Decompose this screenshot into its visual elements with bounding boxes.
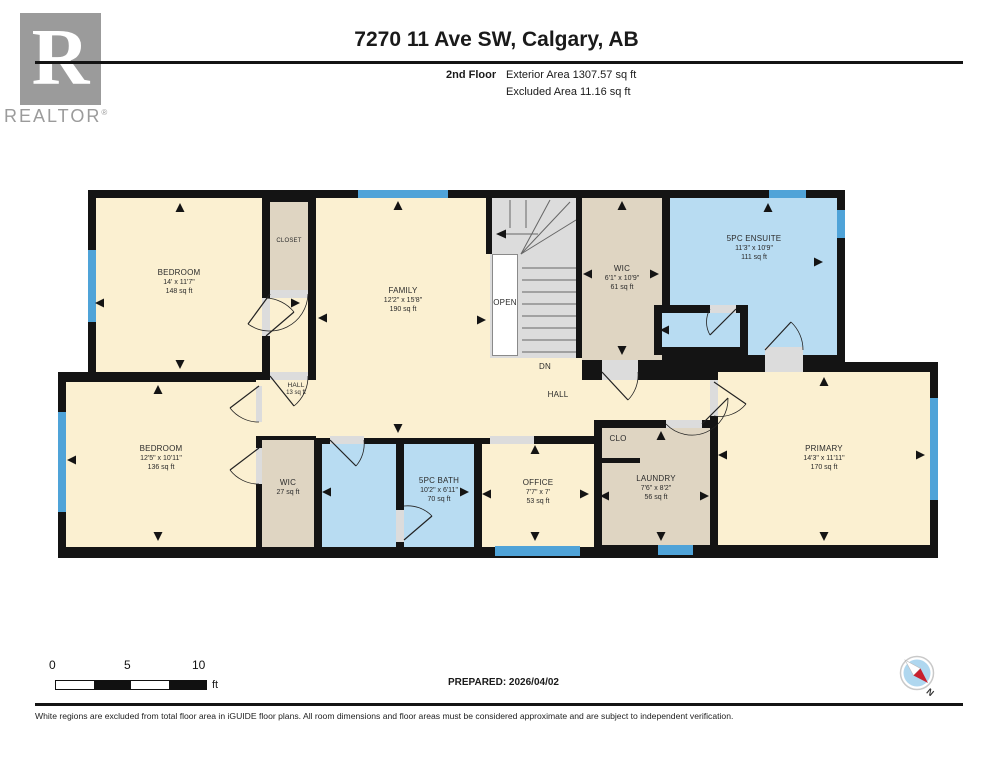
scale-tick-10: 10 [192,658,205,672]
dimension-arrow [618,201,627,210]
floorplan-page: R REALTOR® 7270 11 Ave SW, Calgary, AB 2… [0,0,993,768]
scale-bar-segment [94,681,132,689]
scale-tick-0: 0 [49,658,56,672]
disclaimer-text: White regions are excluded from total fl… [35,711,960,721]
dimension-arrow [67,456,76,465]
dimension-arrow [700,492,709,501]
realtor-logo: R [20,13,101,105]
header-divider [35,61,963,64]
dimension-arrow [154,385,163,394]
floor-plan: BEDROOM 14' x 11'7" 148 sq ft CLOSET FAM… [58,190,938,558]
compass-icon: N [894,650,940,696]
dimension-arrow [820,377,829,386]
dimension-arrow [916,451,925,460]
dimension-arrow [660,326,669,335]
exterior-area: Exterior Area 1307.57 sq ft [506,69,636,81]
dimension-arrow [820,532,829,541]
dimension-arrow [482,490,491,499]
dimension-arrow [460,488,469,497]
dimension-arrow [322,488,331,497]
plan-annotations [58,190,938,558]
dimension-arrow [718,451,727,460]
dimension-arrow [176,360,185,369]
scale-bar-segment [131,681,169,689]
dimension-arrow [531,445,540,454]
stair-treads [504,200,576,352]
dimension-arrows [67,201,925,541]
dimension-arrow [176,203,185,212]
realtor-logo-word: REALTOR® [4,106,109,127]
dimension-arrow [291,299,300,308]
scale-bar-segment [169,681,207,689]
scale-bar [55,680,207,690]
dimension-arrow [600,492,609,501]
dimension-arrow [583,270,592,279]
dimension-arrow [657,431,666,440]
dimension-arrow [764,203,773,212]
dimension-arrow [580,490,589,499]
footer-divider [35,703,963,706]
dimension-arrow [531,532,540,541]
excluded-area: Excluded Area 11.16 sq ft [506,86,631,98]
scale-tick-5: 5 [124,658,131,672]
dimension-arrow [318,314,327,323]
scale-bar-segment [56,681,94,689]
dimension-arrow [477,316,486,325]
scale-unit: ft [212,679,218,691]
dimension-arrow [95,299,104,308]
dimension-arrow [154,532,163,541]
door-swings [230,294,803,540]
prepared-date: PREPARED: 2026/04/02 [448,677,559,688]
compass-n-label: N [924,686,935,696]
page-title: 7270 11 Ave SW, Calgary, AB [0,28,993,52]
dimension-arrow [657,532,666,541]
dimension-arrow [650,270,659,279]
registered-mark: ® [101,108,109,117]
stair-direction-arrow [496,230,506,239]
dimension-arrow [394,424,403,433]
dimension-arrow [618,346,627,355]
floor-label: 2nd Floor [446,69,496,81]
dimension-arrow [814,258,823,267]
dimension-arrow [394,201,403,210]
